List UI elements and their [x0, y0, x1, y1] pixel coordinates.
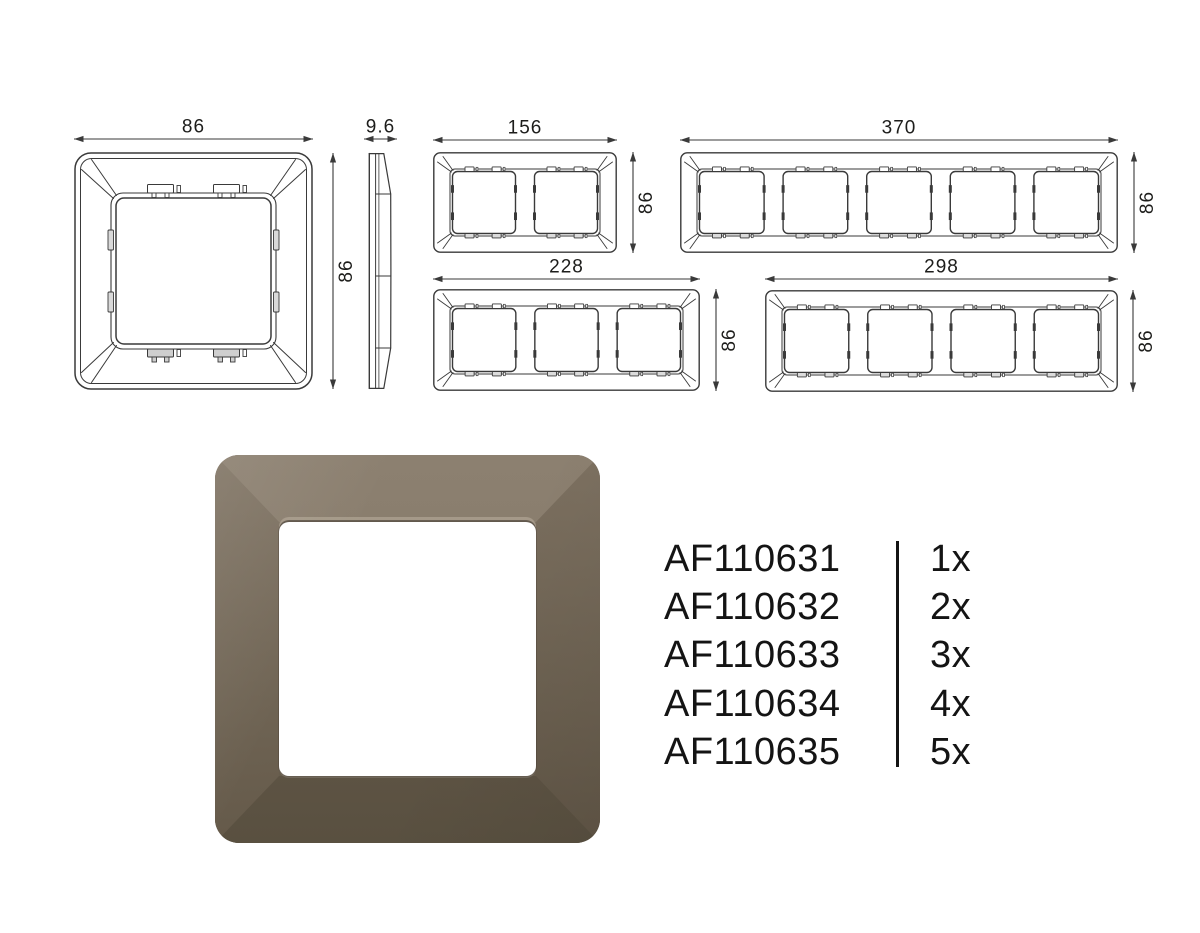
product-render-1gang-frame — [215, 455, 600, 843]
drawing-frame-3gang — [433, 289, 700, 391]
part-quantity: 2x — [930, 586, 971, 629]
svg-text:86: 86 — [1136, 329, 1157, 352]
frame-window-opening — [279, 522, 536, 776]
dimension-86: 86 — [713, 289, 740, 391]
dimension-9.6: 9.6 — [364, 117, 397, 143]
dimension-86: 86 — [1131, 152, 1158, 253]
part-quantity: 4x — [930, 683, 971, 726]
dimension-86: 86 — [1130, 290, 1157, 392]
part-code: AF110632 — [664, 586, 896, 629]
parts-list: AF110631 1x AF110632 2x AF110633 3x AF11… — [664, 535, 971, 777]
dimension-annotations: 86869.615686370862288629886 — [0, 0, 1200, 933]
drawing-frame-2gang — [433, 152, 617, 253]
part-quantity: 5x — [930, 731, 971, 774]
drawing-front-1gang — [74, 152, 313, 390]
svg-text:86: 86 — [1137, 191, 1158, 214]
dimension-298: 298 — [765, 257, 1118, 283]
parts-list-row: AF110631 1x — [664, 535, 971, 583]
part-code: AF110635 — [664, 731, 896, 774]
svg-text:86: 86 — [336, 259, 357, 282]
parts-list-divider — [896, 541, 899, 767]
svg-text:370: 370 — [882, 118, 917, 139]
svg-text:228: 228 — [549, 257, 584, 278]
product-spec-sheet: 86869.615686370862288629886 AF110631 1x … — [0, 0, 1200, 933]
dimension-86: 86 — [330, 153, 357, 389]
dimension-156: 156 — [433, 118, 617, 144]
dimension-370: 370 — [680, 118, 1118, 144]
parts-list-row: AF110632 2x — [664, 583, 971, 631]
svg-text:298: 298 — [924, 257, 959, 278]
svg-text:86: 86 — [636, 191, 657, 214]
svg-text:9.6: 9.6 — [366, 117, 395, 138]
svg-text:86: 86 — [182, 117, 205, 138]
part-quantity: 1x — [930, 538, 971, 581]
parts-list-row: AF110633 3x — [664, 632, 971, 680]
drawing-side-profile — [368, 152, 394, 390]
svg-text:86: 86 — [719, 328, 740, 351]
parts-list-row: AF110634 4x — [664, 680, 971, 728]
part-code: AF110631 — [664, 538, 896, 581]
part-quantity: 3x — [930, 634, 971, 677]
parts-list-row: AF110635 5x — [664, 729, 971, 777]
part-code: AF110633 — [664, 634, 896, 677]
dimension-86: 86 — [74, 117, 313, 143]
drawing-frame-5gang — [680, 152, 1118, 253]
svg-text:156: 156 — [508, 118, 543, 139]
part-code: AF110634 — [664, 683, 896, 726]
drawing-frame-4gang — [765, 290, 1118, 392]
dimension-86: 86 — [630, 152, 657, 253]
dimension-228: 228 — [433, 257, 700, 283]
